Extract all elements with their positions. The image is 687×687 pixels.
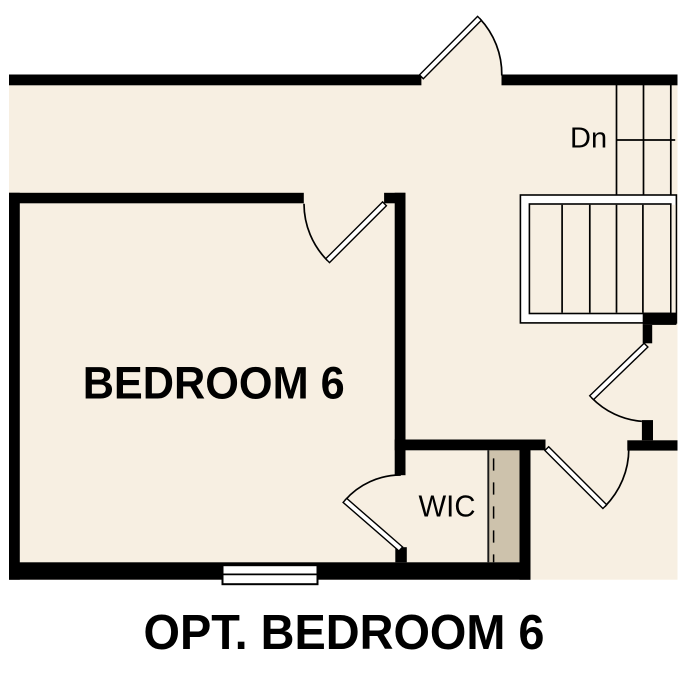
- svg-text:BEDROOM 6: BEDROOM 6: [83, 358, 345, 409]
- svg-text:Dn: Dn: [570, 123, 607, 155]
- svg-text:WIC: WIC: [419, 489, 476, 524]
- svg-text:OPT. BEDROOM 6: OPT. BEDROOM 6: [144, 606, 545, 660]
